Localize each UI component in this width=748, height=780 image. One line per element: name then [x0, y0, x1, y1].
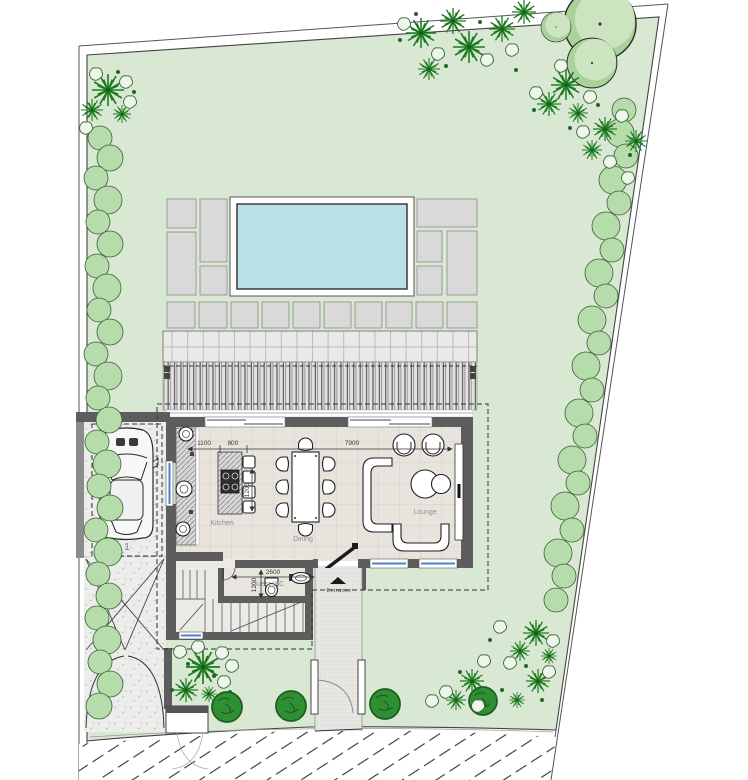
bar-stool	[243, 471, 255, 483]
parking-space-number: 1	[124, 542, 130, 553]
washbasin	[292, 573, 311, 584]
entrance-label: Entrance	[326, 588, 351, 594]
dim-1100: 1100	[197, 440, 211, 447]
pergola-post	[470, 366, 476, 372]
coffee-table	[432, 475, 451, 494]
armchair	[393, 434, 415, 456]
bar-stool	[243, 456, 255, 468]
pergola-louvers	[163, 362, 477, 417]
kitchen-sink	[179, 427, 193, 441]
pool-water	[237, 204, 407, 289]
lounge-label: Lounge	[413, 509, 436, 516]
kitchen-label: Kitchen	[210, 520, 233, 527]
bush	[276, 691, 306, 721]
gate-post	[311, 660, 318, 714]
bush	[370, 689, 400, 719]
boundary-wall	[76, 412, 84, 558]
armchair	[422, 434, 444, 456]
dim-island: 1200	[244, 482, 251, 497]
dim-7900: 7900	[345, 440, 360, 447]
pergola-post	[164, 366, 170, 372]
terrace-paving	[163, 331, 477, 362]
tv	[458, 484, 461, 498]
guest-wc-label: Guest WC	[252, 581, 284, 588]
gate-post	[358, 660, 365, 714]
garage-top-wall	[76, 412, 170, 422]
dining-label: Dining	[293, 536, 313, 543]
dining-table	[292, 452, 319, 522]
dim-800: 800	[228, 440, 239, 447]
swimming-pool	[230, 197, 414, 296]
entrance-path: Entrance	[311, 568, 365, 731]
site-plan-page: 1	[0, 0, 748, 780]
tree	[541, 12, 571, 42]
garden-wall	[164, 648, 172, 709]
site-plan-drawing: 1	[0, 0, 748, 780]
bar-stool	[243, 501, 255, 513]
dim-2600: 2600	[266, 569, 281, 576]
bush	[212, 692, 242, 722]
